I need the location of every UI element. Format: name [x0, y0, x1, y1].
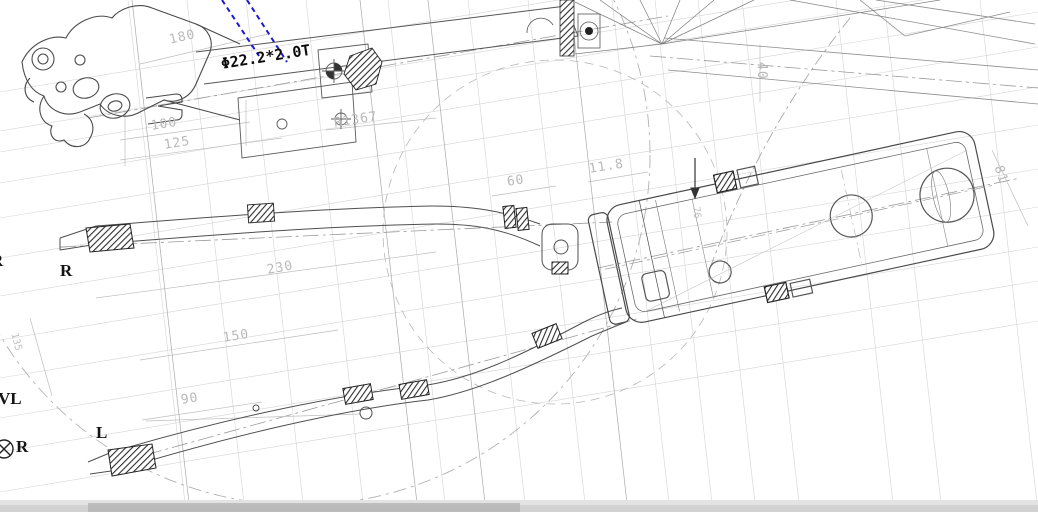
- cad-drawing-canvas[interactable]: 180100125R13676011.840768123015090135RRV…: [0, 0, 1038, 512]
- dimension-label: 60: [506, 173, 525, 189]
- dimension-label: 76: [690, 206, 701, 219]
- construction-grid-dark: [132, 0, 628, 512]
- centerline-circles: [0, 0, 850, 505]
- part-side-label: R: [0, 252, 3, 269]
- axis-centerlines: [60, 16, 1038, 462]
- part-side-label: VL: [0, 390, 22, 407]
- part-side-label: L: [96, 424, 107, 441]
- seat-tube-section: [527, 0, 940, 56]
- dimension-label: 90: [180, 391, 199, 407]
- dimension-label: 40: [755, 62, 768, 80]
- dimension-label: 125: [163, 135, 191, 152]
- dimension-label: 150: [222, 328, 250, 345]
- battery-case: [584, 117, 1010, 336]
- arrow-annotation: [691, 158, 699, 198]
- part-side-label: R: [60, 262, 72, 279]
- construction-grid: [0, 0, 1038, 512]
- datum-symbol: [0, 440, 13, 458]
- part-side-label: R: [16, 438, 28, 455]
- right-top-tube: [664, 0, 1038, 104]
- dimension-label: 100: [150, 116, 178, 133]
- cad-drawing: [0, 0, 1038, 512]
- bottom-band: [0, 500, 1038, 512]
